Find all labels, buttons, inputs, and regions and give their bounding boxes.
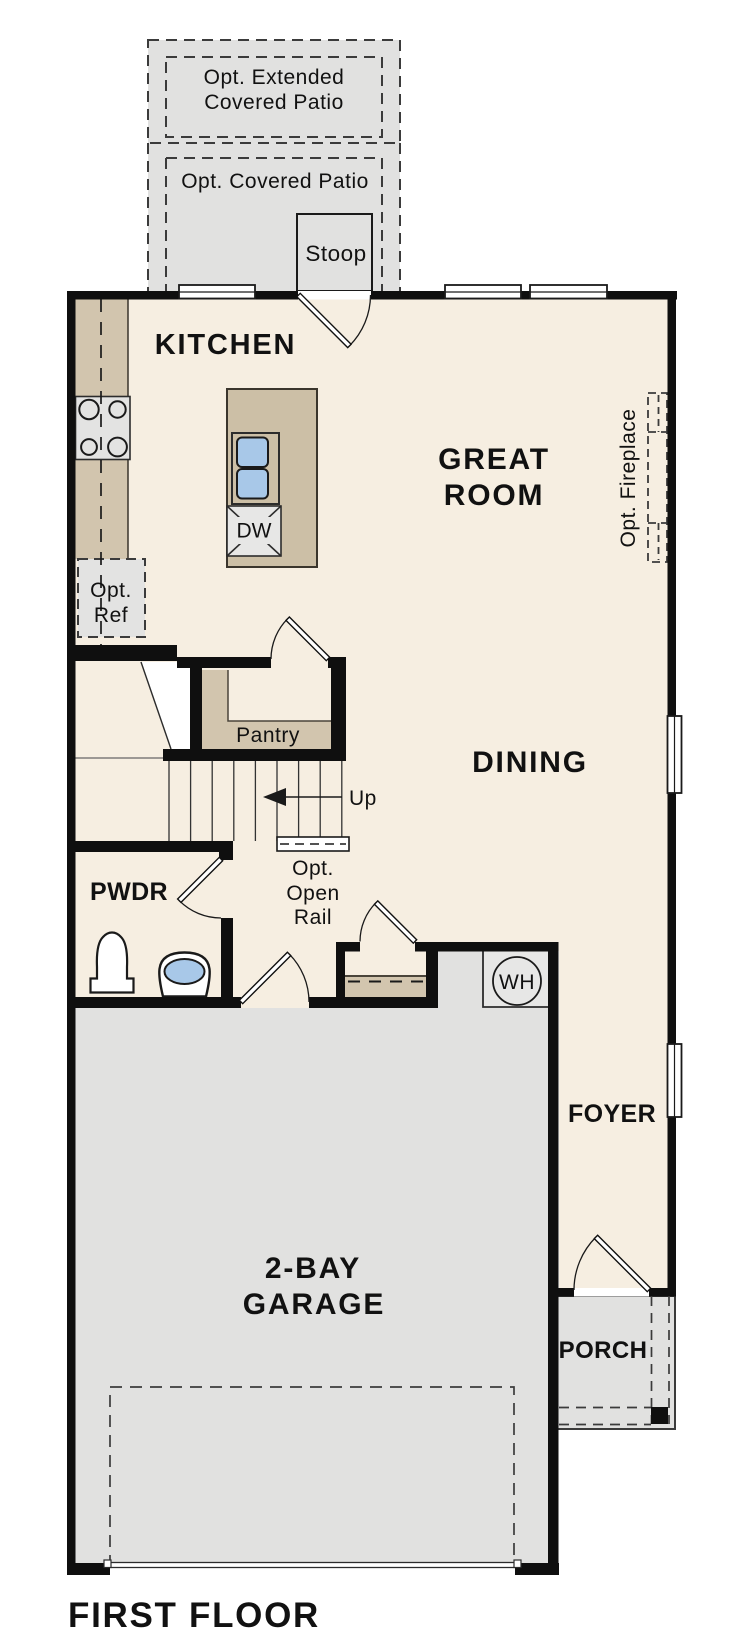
svg-text:GARAGE: GARAGE — [243, 1288, 385, 1321]
svg-text:FIRST FLOOR: FIRST FLOOR — [68, 1596, 320, 1635]
svg-text:WH: WH — [499, 971, 535, 994]
svg-text:DW: DW — [237, 520, 272, 543]
svg-text:FOYER: FOYER — [568, 1100, 656, 1128]
svg-text:2-BAY: 2-BAY — [265, 1252, 361, 1285]
svg-text:Up: Up — [349, 787, 377, 810]
svg-text:Opt.: Opt. — [292, 857, 334, 880]
svg-text:Stoop: Stoop — [305, 241, 366, 266]
svg-text:Covered Patio: Covered Patio — [204, 91, 344, 114]
svg-text:Open: Open — [286, 882, 339, 905]
svg-text:Opt. Extended: Opt. Extended — [204, 66, 345, 89]
svg-text:DINING: DINING — [472, 746, 588, 779]
svg-text:Opt. Fireplace: Opt. Fireplace — [617, 409, 640, 548]
svg-text:PORCH: PORCH — [559, 1337, 648, 1364]
svg-text:GREAT: GREAT — [438, 443, 550, 476]
svg-text:KITCHEN: KITCHEN — [155, 329, 297, 361]
svg-text:Opt. Covered Patio: Opt. Covered Patio — [181, 170, 369, 193]
svg-text:Rail: Rail — [294, 906, 332, 929]
svg-text:Pantry: Pantry — [236, 724, 300, 747]
svg-text:Opt.: Opt. — [90, 579, 132, 602]
svg-text:ROOM: ROOM — [444, 479, 545, 512]
svg-text:Ref: Ref — [94, 604, 128, 627]
svg-text:PWDR: PWDR — [90, 878, 168, 906]
